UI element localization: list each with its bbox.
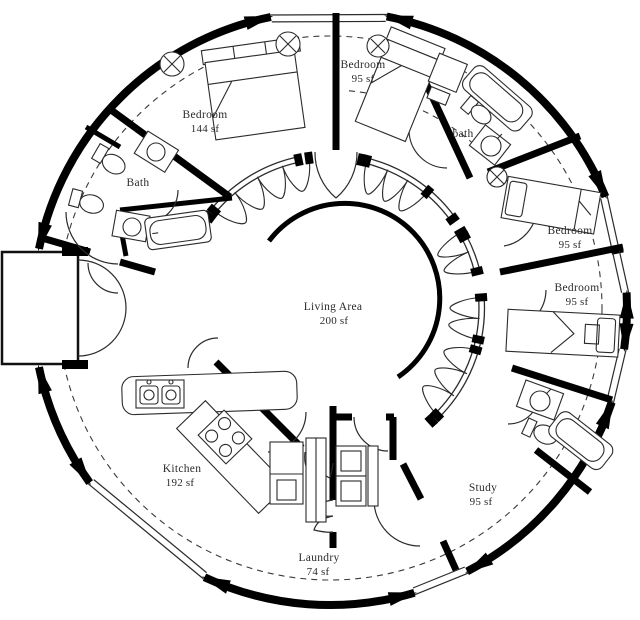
window [614,350,627,403]
floor-plan-page: Bedroom 144 sf Bedroom 95 sf bath Bedroo… [0,0,640,620]
wall-jamb [471,334,484,344]
washer-icon [336,446,366,476]
wall-end-cap [202,577,231,594]
wall-end-cap [38,365,52,395]
window [272,21,386,22]
label-bedroom-n-name: Bedroom [341,59,386,71]
label-bath-ne-name: bath [453,128,474,140]
entry-vestibule [2,247,126,369]
entry-door-leaf [78,260,126,308]
wall-end-cap [388,592,417,606]
label-bedroom-e-lower-area: 95 sf [566,296,589,308]
label-laundry-name: Laundry [298,552,339,564]
bathtub-icon [144,210,212,251]
label-kitchen-area: 192 sf [166,477,195,489]
wall-jamb [475,293,488,302]
sink-icon [469,125,510,165]
label-bedroom-nw-name: Bedroom [183,109,228,121]
wall-jamb [293,153,303,166]
outer-wall [205,577,415,605]
label-bedroom-e-upper-name: Bedroom [548,225,593,237]
label-study-name: Study [469,482,497,494]
label-laundry-area: 74 sf [307,566,330,578]
bed-single-east-upper [487,167,601,234]
label-living-area-name: Living Area [304,301,363,313]
laundry-shelf [368,446,378,506]
label-study-area: 95 sf [470,496,493,508]
sink-icon [112,210,150,242]
hall-wall-arc [462,238,475,272]
entry-jamb [62,360,88,369]
label-living-area-area: 200 sf [320,315,349,327]
sink-icon [134,131,178,172]
label-bedroom-e-upper-area: 95 sf [559,239,582,251]
sink-icon [516,380,563,420]
kitchen-sink-icon [136,380,184,408]
window [88,484,204,579]
wall-jamb [304,152,314,165]
window [270,15,387,16]
bifold-closet-doors [438,233,476,274]
floor-plan: Bedroom 144 sf Bedroom 95 sf bath Bedroo… [0,0,640,620]
living-area-wall [269,203,440,377]
hall-wall-arc [361,162,451,220]
entry-door-leaf [78,308,126,356]
fridge-icon [270,442,303,504]
label-bath-w-name: Bath [127,177,150,189]
hall-wall-arc [433,297,484,423]
bifold-closet-doors [449,298,480,340]
label-bedroom-e-lower-name: Bedroom [555,282,600,294]
label-bedroom-nw-area: 144 sf [191,123,220,135]
label-kitchen-name: Kitchen [163,463,202,475]
kitchen-counter [121,371,326,522]
dryer-icon [336,476,366,506]
wall-end-cap [384,16,414,30]
wall-jamb [470,266,484,277]
window [94,480,207,573]
wall-end-cap [620,290,634,319]
wall-end-cap [244,16,274,30]
toilet-icon [68,189,106,216]
label-bedroom-n-area: 95 sf [352,73,375,85]
wall-end-cap [596,400,613,429]
wall-jamb [445,212,459,226]
bed-single-east-lower [506,309,620,357]
